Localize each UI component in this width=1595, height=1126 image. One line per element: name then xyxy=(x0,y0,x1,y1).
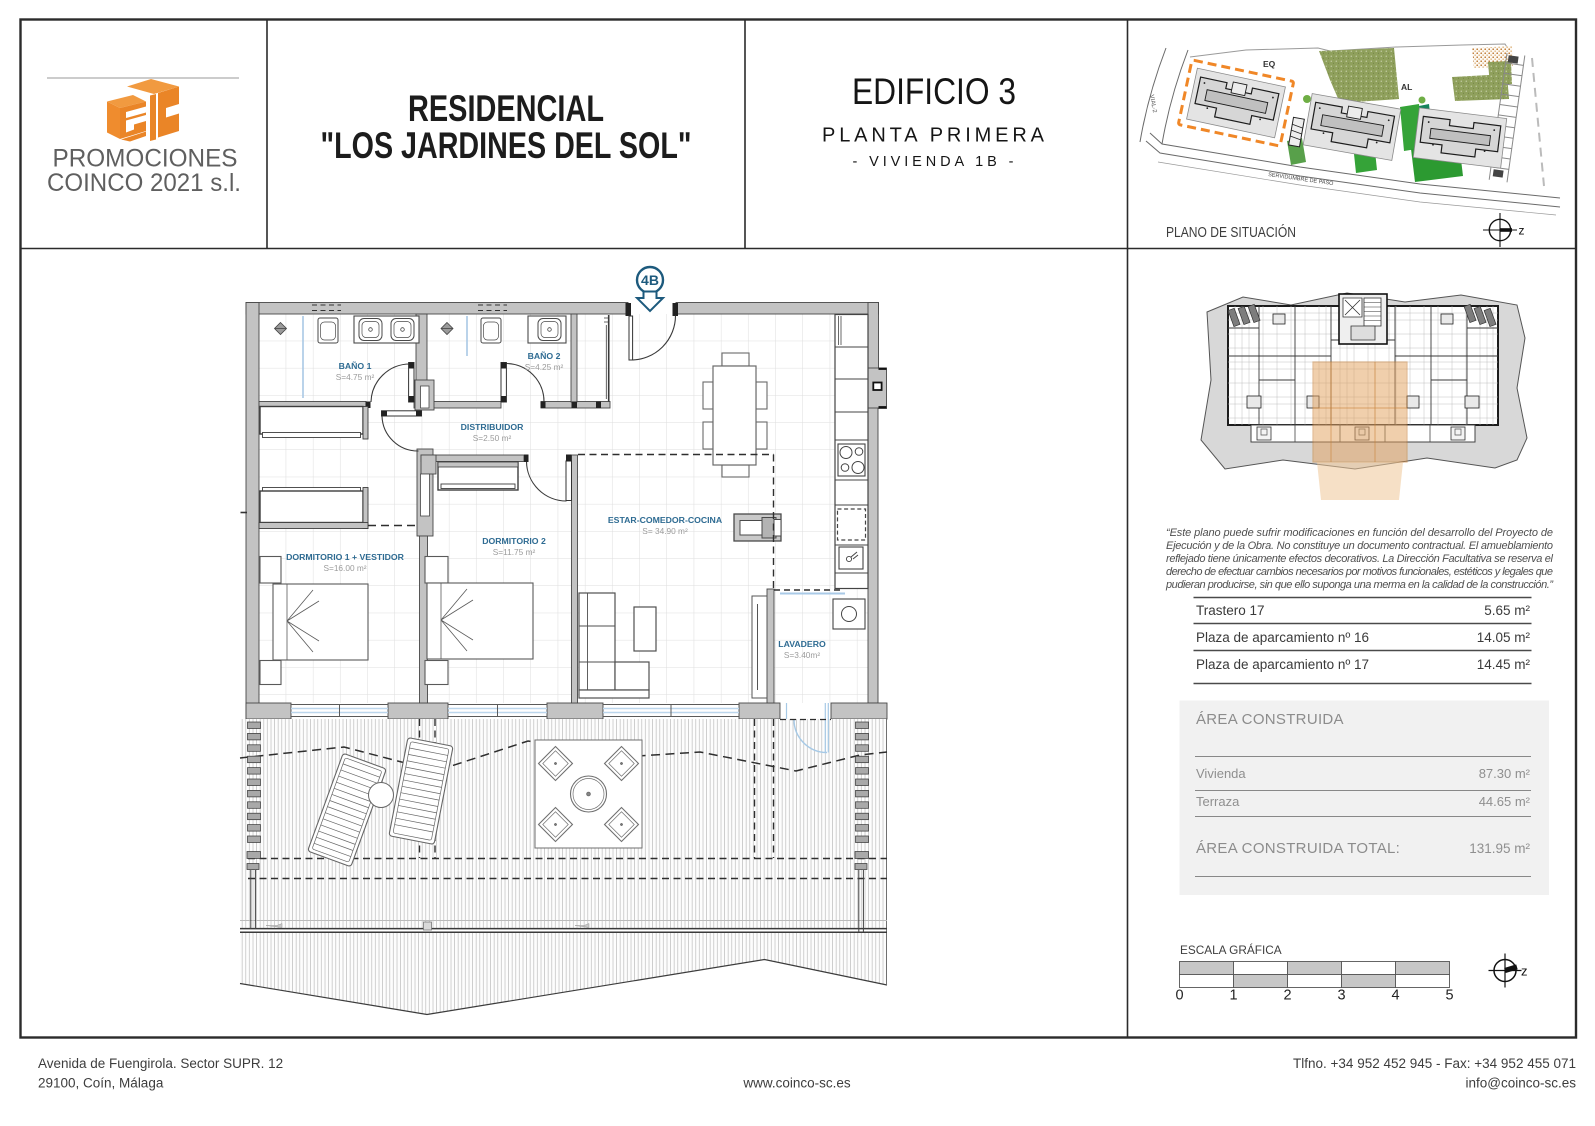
svg-text:131.95 m²: 131.95 m² xyxy=(1469,841,1530,856)
svg-text:VIAL-2: VIAL-2 xyxy=(1148,94,1157,114)
svg-text:Ejecución y de la Obra. No con: Ejecución y de la Obra. No constituye un… xyxy=(1166,540,1553,552)
svg-text:S=16.00 m²: S=16.00 m² xyxy=(323,563,366,573)
svg-text:COINCO 2021 s.l.: COINCO 2021 s.l. xyxy=(47,169,241,197)
svg-text:Avenida de Fuengirola. Sector: Avenida de Fuengirola. Sector SUPR. 12 xyxy=(38,1056,283,1071)
svg-text:Terraza: Terraza xyxy=(1196,794,1240,809)
svg-text:EQ: EQ xyxy=(1263,59,1276,69)
svg-text:info@coinco-sc.es: info@coinco-sc.es xyxy=(1466,1076,1577,1091)
svg-text:ÁREA CONSTRUIDA: ÁREA CONSTRUIDA xyxy=(1196,711,1344,728)
svg-text:reflejado tiene únicamente efe: reflejado tiene únicamente efectos decor… xyxy=(1166,553,1554,565)
svg-text:DORMITORIO 1 + VESTIDOR: DORMITORIO 1 + VESTIDOR xyxy=(286,552,405,562)
svg-text:z: z xyxy=(1519,224,1525,238)
svg-text:pudieran producirse, sin que e: pudieran producirse, sin que ello supong… xyxy=(1165,579,1554,591)
svg-text:ESCALA GRÁFICA: ESCALA GRÁFICA xyxy=(1180,943,1282,957)
svg-text:www.coinco-sc.es: www.coinco-sc.es xyxy=(742,1076,851,1091)
svg-text:DORMITORIO 2: DORMITORIO 2 xyxy=(482,536,546,546)
svg-text:14.05 m²: 14.05 m² xyxy=(1477,630,1531,645)
svg-text:S= 34.90 m²: S= 34.90 m² xyxy=(642,526,688,536)
svg-text:S=4.25 m²: S=4.25 m² xyxy=(525,362,564,372)
svg-text:S=11.75 m²: S=11.75 m² xyxy=(493,547,536,557)
svg-text:Plaza de aparcamiento nº 16: Plaza de aparcamiento nº 16 xyxy=(1196,630,1369,645)
svg-text:z: z xyxy=(1521,964,1528,979)
svg-text:29100, Coín, Málaga: 29100, Coín, Málaga xyxy=(38,1076,164,1091)
svg-text:- VIVIENDA 1B -: - VIVIENDA 1B - xyxy=(853,154,1014,170)
svg-text:87.30 m²: 87.30 m² xyxy=(1479,766,1531,781)
svg-text:BAÑO 1: BAÑO 1 xyxy=(339,361,372,371)
svg-text:Vivienda: Vivienda xyxy=(1196,766,1246,781)
svg-text:ÁREA CONSTRUIDA TOTAL:: ÁREA CONSTRUIDA TOTAL: xyxy=(1196,840,1400,857)
svg-text:DISTRIBUIDOR: DISTRIBUIDOR xyxy=(461,422,524,432)
svg-text:2: 2 xyxy=(1283,988,1291,1004)
svg-text:PLANO DE SITUACIÓN: PLANO DE SITUACIÓN xyxy=(1166,224,1296,241)
svg-text:4B: 4B xyxy=(641,272,659,288)
svg-text:Trastero 17: Trastero 17 xyxy=(1196,603,1265,618)
svg-text:"LOS JARDINES DEL SOL": "LOS JARDINES DEL SOL" xyxy=(321,125,692,166)
svg-text:0: 0 xyxy=(1175,988,1183,1004)
svg-text:S=4.75 m²: S=4.75 m² xyxy=(336,372,375,382)
svg-text:BAÑO 2: BAÑO 2 xyxy=(528,351,561,361)
svg-text:LAVADERO: LAVADERO xyxy=(778,639,826,649)
svg-text:PLANTA PRIMERA: PLANTA PRIMERA xyxy=(822,125,1045,147)
svg-text:Tlfno. +34 952 452 945 - Fax:: Tlfno. +34 952 452 945 - Fax: +34 952 45… xyxy=(1293,1056,1576,1071)
svg-text:5.65 m²: 5.65 m² xyxy=(1484,603,1530,618)
svg-text:3: 3 xyxy=(1337,988,1345,1004)
svg-text:RESIDENCIAL: RESIDENCIAL xyxy=(408,88,604,129)
svg-text:14.45 m²: 14.45 m² xyxy=(1477,657,1531,672)
svg-text:ESTAR-COMEDOR-COCINA: ESTAR-COMEDOR-COCINA xyxy=(608,515,723,525)
svg-text:1: 1 xyxy=(1229,988,1237,1004)
svg-text:“Este plano puede sufrir modif: “Este plano puede sufrir modificaciones … xyxy=(1166,527,1553,539)
svg-text:4: 4 xyxy=(1391,988,1399,1004)
svg-text:Plaza de aparcamiento nº 17: Plaza de aparcamiento nº 17 xyxy=(1196,657,1369,672)
svg-text:EDIFICIO 3: EDIFICIO 3 xyxy=(852,71,1016,112)
svg-text:44.65 m²: 44.65 m² xyxy=(1479,794,1531,809)
svg-text:S=2.50 m²: S=2.50 m² xyxy=(473,433,512,443)
svg-text:S=3.40m²: S=3.40m² xyxy=(784,650,820,660)
svg-text:5: 5 xyxy=(1445,988,1453,1004)
svg-text:AL: AL xyxy=(1401,82,1412,92)
svg-text:derecho de efectuar cambios ne: derecho de efectuar cambios necesarios p… xyxy=(1166,566,1553,578)
